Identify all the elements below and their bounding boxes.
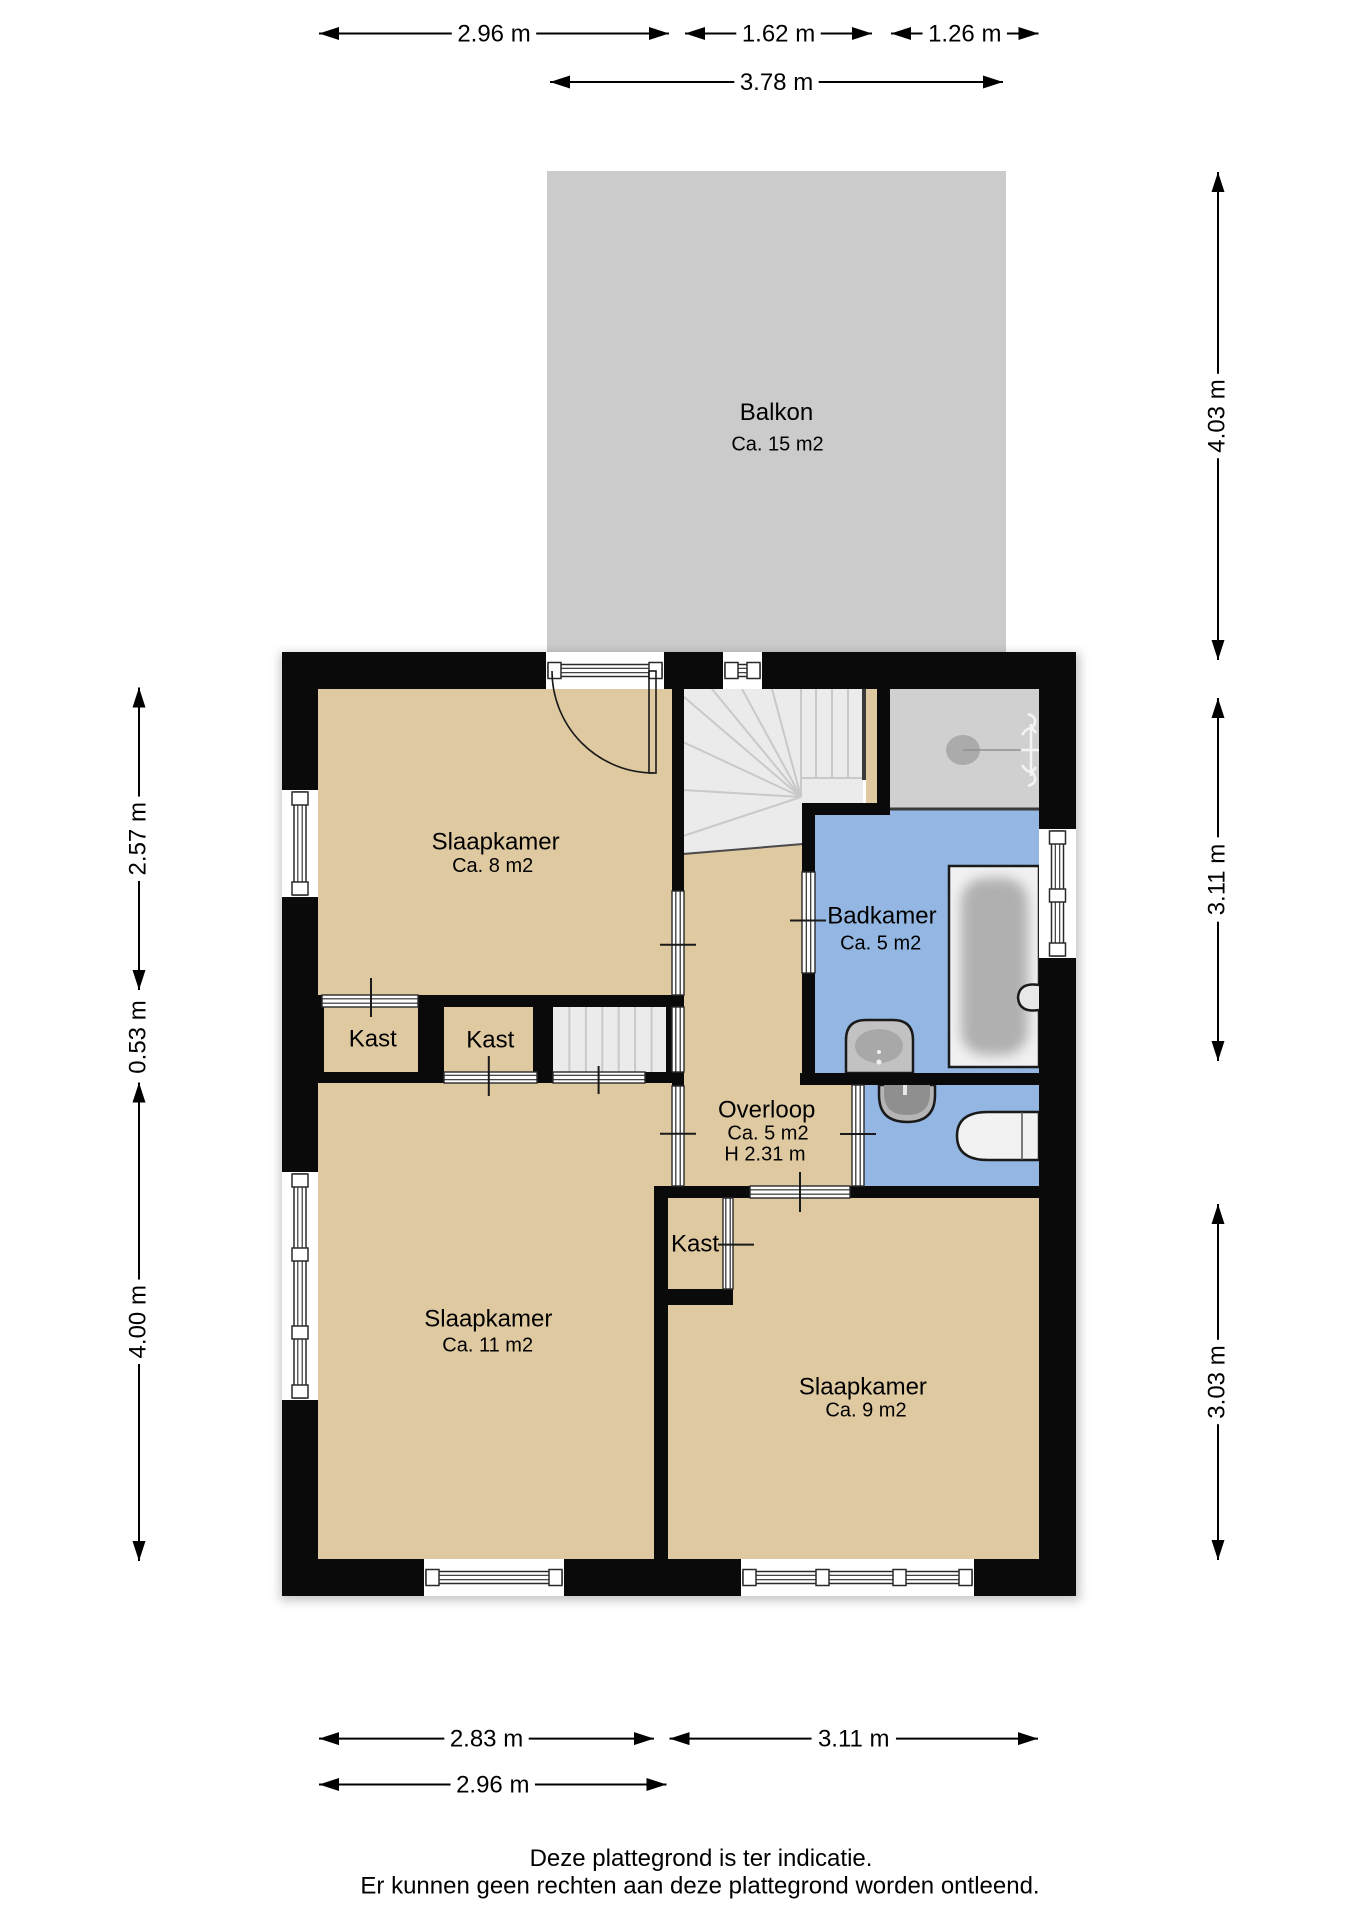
svg-text:3.78 m: 3.78 m xyxy=(740,69,813,96)
svg-text:Ca. 11 m2: Ca. 11 m2 xyxy=(442,1334,533,1356)
svg-text:1.62 m: 1.62 m xyxy=(742,20,815,47)
svg-text:2.96 m: 2.96 m xyxy=(457,20,530,47)
svg-text:H 2.31 m: H 2.31 m xyxy=(724,1143,805,1165)
svg-text:Balkon: Balkon xyxy=(740,399,813,426)
svg-text:Slaapkamer: Slaapkamer xyxy=(432,828,560,855)
svg-text:2.83 m: 2.83 m xyxy=(450,1725,523,1752)
svg-text:Ca. 15 m2: Ca. 15 m2 xyxy=(731,433,823,455)
svg-text:Ca. 5 m2: Ca. 5 m2 xyxy=(840,932,921,954)
svg-text:Ca. 5 m2: Ca. 5 m2 xyxy=(727,1123,808,1145)
svg-text:Overloop: Overloop xyxy=(718,1097,815,1124)
svg-text:0.53 m: 0.53 m xyxy=(124,1000,151,1073)
svg-text:Ca. 9 m2: Ca. 9 m2 xyxy=(825,1399,906,1421)
svg-text:2.96 m: 2.96 m xyxy=(456,1771,529,1798)
svg-text:Badkamer: Badkamer xyxy=(827,903,936,930)
svg-text:3.03 m: 3.03 m xyxy=(1203,1345,1230,1418)
svg-text:Deze plattegrond is ter indica: Deze plattegrond is ter indicatie. xyxy=(530,1845,873,1872)
svg-text:Kast: Kast xyxy=(466,1026,514,1053)
svg-text:4.00 m: 4.00 m xyxy=(124,1285,151,1358)
svg-text:4.03 m: 4.03 m xyxy=(1203,379,1230,452)
svg-text:Er kunnen geen rechten aan dez: Er kunnen geen rechten aan deze plattegr… xyxy=(360,1873,1039,1900)
svg-text:Kast: Kast xyxy=(349,1025,397,1052)
svg-text:Ca. 8 m2: Ca. 8 m2 xyxy=(452,855,533,877)
svg-text:Kast: Kast xyxy=(671,1230,719,1257)
svg-text:Slaapkamer: Slaapkamer xyxy=(799,1373,927,1400)
svg-text:3.11 m: 3.11 m xyxy=(818,1725,890,1752)
svg-text:1.26 m: 1.26 m xyxy=(928,20,1001,47)
svg-text:3.11 m: 3.11 m xyxy=(1203,844,1230,916)
svg-text:Slaapkamer: Slaapkamer xyxy=(424,1305,552,1332)
svg-text:2.57 m: 2.57 m xyxy=(124,802,151,875)
